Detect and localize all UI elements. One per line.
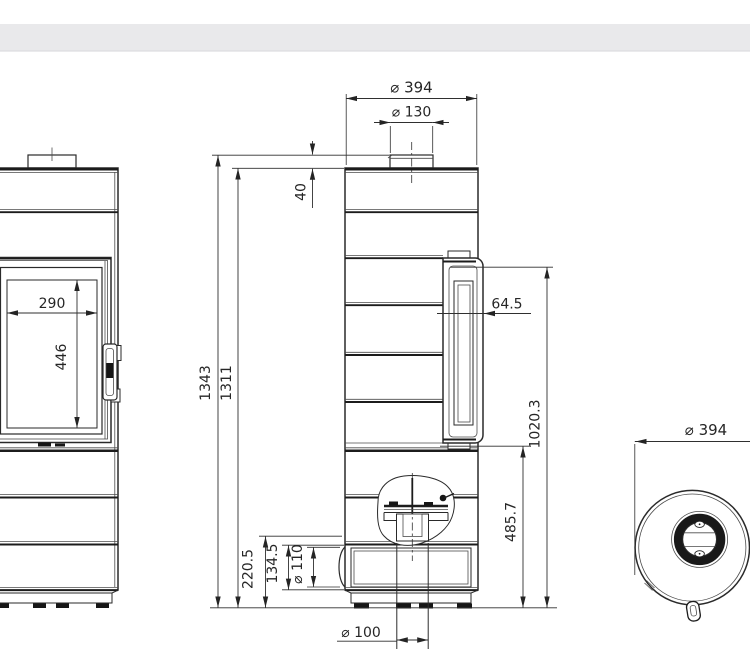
top-outer-circle (635, 490, 749, 604)
side-view (339, 142, 483, 649)
dim-door-projection-label: 64.5 (491, 297, 522, 313)
dim-door-top-height: 1020.3 (528, 268, 548, 608)
dim-body-height-label: 1311 (219, 365, 235, 401)
dim-glass-width-label: 290 (39, 296, 66, 312)
front-foot (0, 604, 9, 609)
dim-total-height-label: 1343 (198, 365, 214, 401)
top-handle-tab (686, 601, 701, 622)
dim-side-inlet-diameter-label: ⌀ 110 (290, 544, 306, 584)
dim-inlet-zone-height: 220.5 (241, 537, 266, 608)
top-flue-ring (672, 511, 728, 567)
dim-side-inlet-diameter: ⌀ 110 (290, 544, 314, 587)
dim-bottom-inlet-diameter-label: ⌀ 100 (341, 625, 381, 641)
dim-top-outer-diameter: ⌀ 394 (635, 421, 750, 575)
dim-glass-height-label: 446 (54, 344, 70, 371)
dim-outer-diameter-label: ⌀ 394 (390, 79, 432, 97)
dim-body-height: 1311 (219, 169, 238, 608)
dim-collar-height-label: 40 (294, 183, 310, 201)
side-door-profile (443, 251, 483, 449)
dimension-annotations: ⌀ 394 ⌀ 130 40 1343 1311 64.5 (198, 79, 557, 642)
dim-flue-diameter: ⌀ 130 (374, 105, 449, 123)
front-view: 290 446 (0, 148, 121, 609)
dim-bottom-inlet-diameter: ⌀ 100 (337, 625, 428, 641)
dim-base-opening-height: 134.5 (265, 543, 289, 589)
dim-door-bottom-height-label: 485.7 (504, 502, 520, 542)
dim-collar-height: 40 (294, 141, 313, 208)
dim-outer-diameter: ⌀ 394 (346, 79, 477, 99)
dim-door-top-height-label: 1020.3 (528, 400, 544, 449)
side-inlet-arc (339, 547, 345, 587)
dim-base-opening-height-label: 134.5 (265, 543, 281, 583)
dim-total-height: 1343 (198, 156, 218, 608)
technical-drawing: 290 446 (0, 0, 750, 655)
dim-top-outer-diameter-label: ⌀ 394 (685, 421, 727, 439)
top-view: ⌀ 394 (635, 421, 750, 622)
dim-flue-diameter-label: ⌀ 130 (392, 105, 432, 121)
side-base (339, 547, 478, 609)
dim-inlet-zone-height-label: 220.5 (241, 549, 257, 589)
front-latch (38, 443, 51, 447)
dim-door-bottom-height: 485.7 (504, 447, 524, 608)
header-band (0, 24, 750, 52)
front-base (0, 588, 118, 609)
